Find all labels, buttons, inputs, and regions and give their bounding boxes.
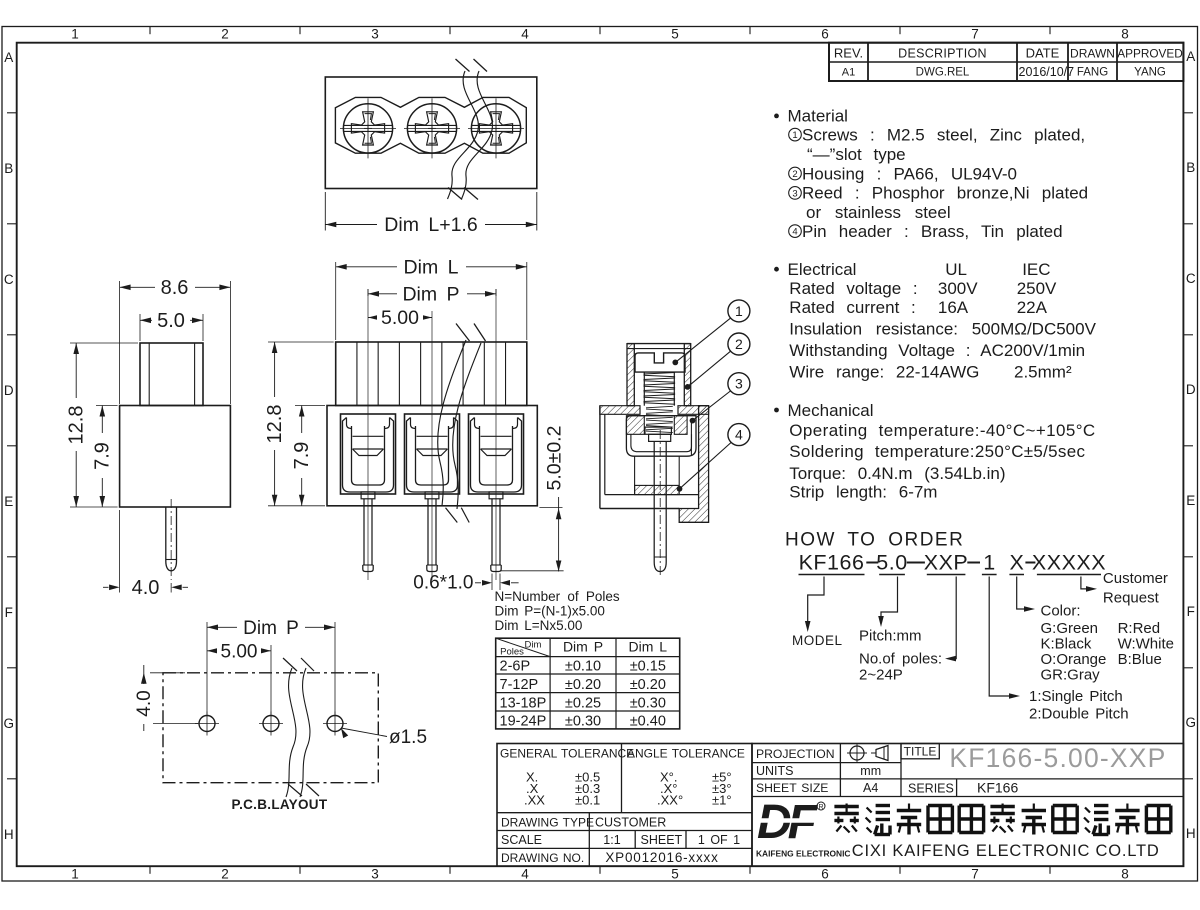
svg-text:APPROVED: APPROVED	[1117, 47, 1183, 61]
svg-text:MODEL: MODEL	[792, 633, 843, 648]
svg-text:No.of poles:: No.of poles:	[859, 651, 942, 668]
svg-text:±0.30: ±0.30	[565, 714, 601, 730]
svg-text:Operating temperature:-40°C~+1: Operating temperature:-40°C~+105°C	[789, 421, 1095, 440]
svg-text:XXXXX: XXXXX	[1032, 551, 1106, 575]
svg-text:Dim L=Nx5.00: Dim L=Nx5.00	[495, 618, 583, 633]
svg-text:.XX: .XX	[524, 793, 545, 808]
svg-text:Withstanding Voltage : AC200V/: Withstanding Voltage : AC200V/1min	[789, 341, 1085, 360]
svg-text:Electrical: Electrical	[788, 260, 857, 279]
svg-text:8: 8	[1121, 866, 1129, 881]
svg-text:P.C.B.LAYOUT: P.C.B.LAYOUT	[232, 797, 328, 812]
svg-text:B:Blue: B:Blue	[1118, 651, 1162, 668]
svg-text:12.8: 12.8	[264, 405, 286, 444]
svg-text:±1°: ±1°	[712, 793, 732, 808]
svg-text:DESCRIPTION: DESCRIPTION	[898, 47, 987, 61]
svg-text:Dim P: Dim P	[402, 283, 459, 305]
svg-text:G:Green: G:Green	[1041, 620, 1099, 637]
svg-text:F: F	[1187, 604, 1195, 619]
svg-text:mm: mm	[860, 764, 881, 778]
svg-text:B: B	[4, 161, 13, 176]
svg-text:4: 4	[792, 227, 797, 238]
svg-text:Housing : PA66, UL94V-0: Housing : PA66, UL94V-0	[802, 164, 1017, 183]
svg-text:7: 7	[971, 866, 979, 881]
svg-text:±0.10: ±0.10	[565, 659, 601, 675]
svg-text:19-24P: 19-24P	[500, 714, 547, 730]
svg-text:DRAWING NO.: DRAWING NO.	[501, 851, 584, 865]
svg-text:GR:Gray: GR:Gray	[1041, 667, 1101, 684]
svg-text:3: 3	[735, 376, 743, 392]
svg-text:O:Orange: O:Orange	[1041, 651, 1107, 668]
svg-text:1: 1	[792, 130, 797, 141]
svg-text:YANG: YANG	[1134, 67, 1166, 79]
svg-text:XP0012016-xxxx: XP0012016-xxxx	[605, 850, 718, 865]
svg-text:A: A	[1186, 49, 1195, 64]
svg-text:Reed : Phosphor bronze,Ni plat: Reed : Phosphor bronze,Ni plated	[802, 184, 1088, 203]
svg-text:C: C	[4, 272, 14, 287]
svg-text:±0.1: ±0.1	[575, 793, 600, 808]
svg-text:±0.15: ±0.15	[630, 659, 666, 675]
svg-text:IEC: IEC	[1022, 260, 1050, 279]
svg-text:22A: 22A	[1017, 298, 1048, 317]
svg-text:1:Single Pitch: 1:Single Pitch	[1029, 688, 1123, 705]
svg-text:±0.30: ±0.30	[630, 696, 666, 712]
svg-text:3: 3	[792, 188, 797, 199]
svg-text:4.0: 4.0	[132, 577, 160, 599]
svg-text:PROJECTION: PROJECTION	[756, 747, 835, 761]
svg-text:N=Number of Poles: N=Number of Poles	[495, 589, 620, 604]
svg-text:Dim L: Dim L	[404, 256, 459, 278]
svg-text:Mechanical: Mechanical	[788, 401, 874, 420]
svg-text:Strip length: 6-7m: Strip length: 6-7m	[789, 483, 937, 502]
svg-text:E: E	[4, 494, 13, 509]
svg-text:DATE: DATE	[1026, 46, 1060, 61]
svg-text:4: 4	[735, 427, 743, 443]
svg-text:Dim P: Dim P	[563, 639, 603, 655]
svg-text:7.9: 7.9	[92, 442, 114, 470]
svg-text:Rated voltage :: Rated voltage :	[789, 279, 917, 298]
svg-text:UNITS: UNITS	[756, 764, 794, 778]
svg-text:Dim L+1.6: Dim L+1.6	[384, 214, 477, 236]
svg-text:4: 4	[521, 27, 529, 42]
svg-text:B: B	[1186, 160, 1195, 175]
svg-text:±0.25: ±0.25	[565, 696, 601, 712]
svg-text:5.0±0.2: 5.0±0.2	[544, 426, 566, 491]
svg-text:1: 1	[71, 27, 79, 42]
svg-text:1: 1	[983, 551, 995, 575]
svg-text:Poles: Poles	[500, 647, 524, 658]
svg-text:8.6: 8.6	[161, 277, 189, 299]
svg-text:7: 7	[971, 27, 979, 42]
svg-text:6: 6	[821, 866, 829, 881]
svg-text:2~24P: 2~24P	[859, 667, 903, 684]
svg-text:Material: Material	[788, 107, 848, 126]
svg-text:7.9: 7.9	[291, 442, 313, 470]
svg-text:A: A	[4, 50, 13, 65]
svg-text:1: 1	[735, 303, 743, 319]
svg-text:G: G	[1186, 715, 1197, 730]
svg-text:Color:: Color:	[1041, 602, 1081, 619]
svg-text:W:White: W:White	[1118, 636, 1174, 653]
svg-text:Dim P: Dim P	[243, 618, 299, 639]
svg-text:Wire range: 22-14AWG: Wire range: 22-14AWG	[789, 363, 979, 382]
svg-text:2: 2	[221, 866, 229, 881]
svg-text:5.00: 5.00	[221, 641, 258, 662]
svg-text:8: 8	[1121, 27, 1129, 42]
svg-text:.XX°: .XX°	[657, 793, 683, 808]
svg-text:0.6*1.0: 0.6*1.0	[413, 573, 473, 594]
svg-text:KAIFENG ELECTRONIC: KAIFENG ELECTRONIC	[756, 849, 850, 859]
svg-text:ø1.5: ø1.5	[389, 727, 427, 748]
svg-text:3: 3	[371, 27, 379, 42]
svg-text:5.0: 5.0	[876, 551, 907, 575]
svg-text:XXP: XXP	[924, 551, 969, 575]
svg-text:±0.20: ±0.20	[565, 677, 601, 693]
svg-text:ANGLE TOLERANCE: ANGLE TOLERANCE	[627, 747, 745, 761]
svg-text:A4: A4	[863, 781, 878, 795]
svg-text:5: 5	[671, 27, 679, 42]
svg-text:SERIES: SERIES	[908, 782, 954, 796]
svg-text:KF166-5.00-XXP: KF166-5.00-XXP	[949, 743, 1166, 773]
svg-text:K:Black: K:Black	[1041, 636, 1092, 653]
svg-text:250V: 250V	[1017, 279, 1057, 298]
svg-text:5: 5	[671, 866, 679, 881]
svg-text:16A: 16A	[938, 298, 969, 317]
svg-text:Pitch:mm: Pitch:mm	[859, 628, 922, 645]
svg-text:1: 1	[71, 866, 79, 881]
svg-text:2.5mm²: 2.5mm²	[1014, 363, 1072, 382]
svg-text:TITLE: TITLE	[904, 744, 937, 758]
svg-text:SHEET: SHEET	[641, 833, 683, 847]
svg-text:Soldering temperature:250°C±5/: Soldering temperature:250°C±5/5sec	[789, 442, 1085, 461]
svg-text:±0.40: ±0.40	[630, 714, 666, 730]
svg-text:Rated current :: Rated current :	[789, 298, 915, 317]
svg-text:“—”slot type: “—”slot type	[807, 145, 906, 164]
svg-text:3: 3	[371, 866, 379, 881]
svg-text:Pin header : Brass, Tin plated: Pin header : Brass, Tin plated	[802, 222, 1063, 241]
svg-text:or stainless steel: or stainless steel	[806, 203, 951, 222]
svg-text:Torque: 0.4N.m (3.54Lb.in): Torque: 0.4N.m (3.54Lb.in)	[789, 464, 1005, 483]
svg-text:300V: 300V	[938, 279, 978, 298]
svg-text:R:Red: R:Red	[1118, 620, 1161, 637]
svg-text:1:1: 1:1	[603, 833, 620, 847]
svg-text:Dim L: Dim L	[629, 639, 668, 655]
svg-text:5.00: 5.00	[381, 307, 419, 329]
svg-text:H: H	[1186, 826, 1196, 841]
svg-text:2:Double Pitch: 2:Double Pitch	[1029, 706, 1129, 723]
svg-text:13-18P: 13-18P	[500, 696, 547, 712]
svg-text:2: 2	[221, 27, 229, 42]
svg-text:G: G	[4, 716, 15, 731]
svg-text:Insulation resistance: 500MΩ/D: Insulation resistance: 500MΩ/DC500V	[789, 319, 1096, 338]
svg-text:KF166: KF166	[977, 780, 1018, 796]
svg-text:5.0: 5.0	[157, 310, 185, 332]
svg-text:DRAWN: DRAWN	[1070, 47, 1115, 61]
svg-text:CUSTOMER: CUSTOMER	[595, 815, 666, 829]
svg-text:2: 2	[735, 336, 743, 352]
svg-text:Dim: Dim	[525, 640, 542, 651]
svg-text:4: 4	[521, 866, 529, 881]
svg-text:E: E	[1186, 493, 1195, 508]
svg-text:A1: A1	[842, 67, 855, 79]
svg-text:CIXI KAIFENG ELECTRONIC CO.LTD: CIXI KAIFENG ELECTRONIC CO.LTD	[852, 842, 1160, 860]
svg-text:2016/10/7: 2016/10/7	[1019, 65, 1075, 79]
svg-text:SHEET SIZE: SHEET SIZE	[756, 781, 828, 795]
svg-text:Dim P=(N-1)x5.00: Dim P=(N-1)x5.00	[495, 604, 605, 619]
svg-text:±0.20: ±0.20	[630, 677, 666, 693]
svg-text:C: C	[1186, 271, 1196, 286]
svg-text:7-12P: 7-12P	[500, 677, 539, 693]
svg-text:KF166: KF166	[799, 551, 865, 575]
svg-text:Request: Request	[1103, 590, 1160, 607]
svg-text:1 OF 1: 1 OF 1	[698, 833, 740, 847]
svg-text:2: 2	[792, 169, 797, 180]
svg-text:4.0: 4.0	[134, 690, 155, 716]
svg-text:FANG: FANG	[1077, 67, 1108, 79]
svg-text:R: R	[818, 804, 823, 811]
svg-text:SCALE: SCALE	[501, 833, 542, 847]
svg-text:DRAWING TYPE: DRAWING TYPE	[501, 815, 594, 829]
svg-text:X: X	[1010, 551, 1024, 575]
svg-text:UL: UL	[945, 260, 967, 279]
svg-text:H: H	[4, 827, 14, 842]
svg-text:DWG.REL: DWG.REL	[916, 67, 970, 79]
svg-text:HOW TO ORDER: HOW TO ORDER	[785, 530, 964, 551]
svg-text:12.8: 12.8	[66, 406, 88, 445]
svg-text:Customer: Customer	[1103, 570, 1168, 587]
svg-text:D: D	[4, 383, 14, 398]
svg-text:Screws : M2.5 steel, Zinc plat: Screws : M2.5 steel, Zinc plated,	[802, 125, 1085, 144]
svg-text:6: 6	[821, 27, 829, 42]
svg-text:REV.: REV.	[834, 46, 863, 61]
svg-text:2-6P: 2-6P	[500, 659, 531, 675]
svg-text:F: F	[5, 605, 13, 620]
svg-text:D: D	[1186, 382, 1196, 397]
svg-text:GENERAL TOLERANCE: GENERAL TOLERANCE	[500, 747, 634, 761]
